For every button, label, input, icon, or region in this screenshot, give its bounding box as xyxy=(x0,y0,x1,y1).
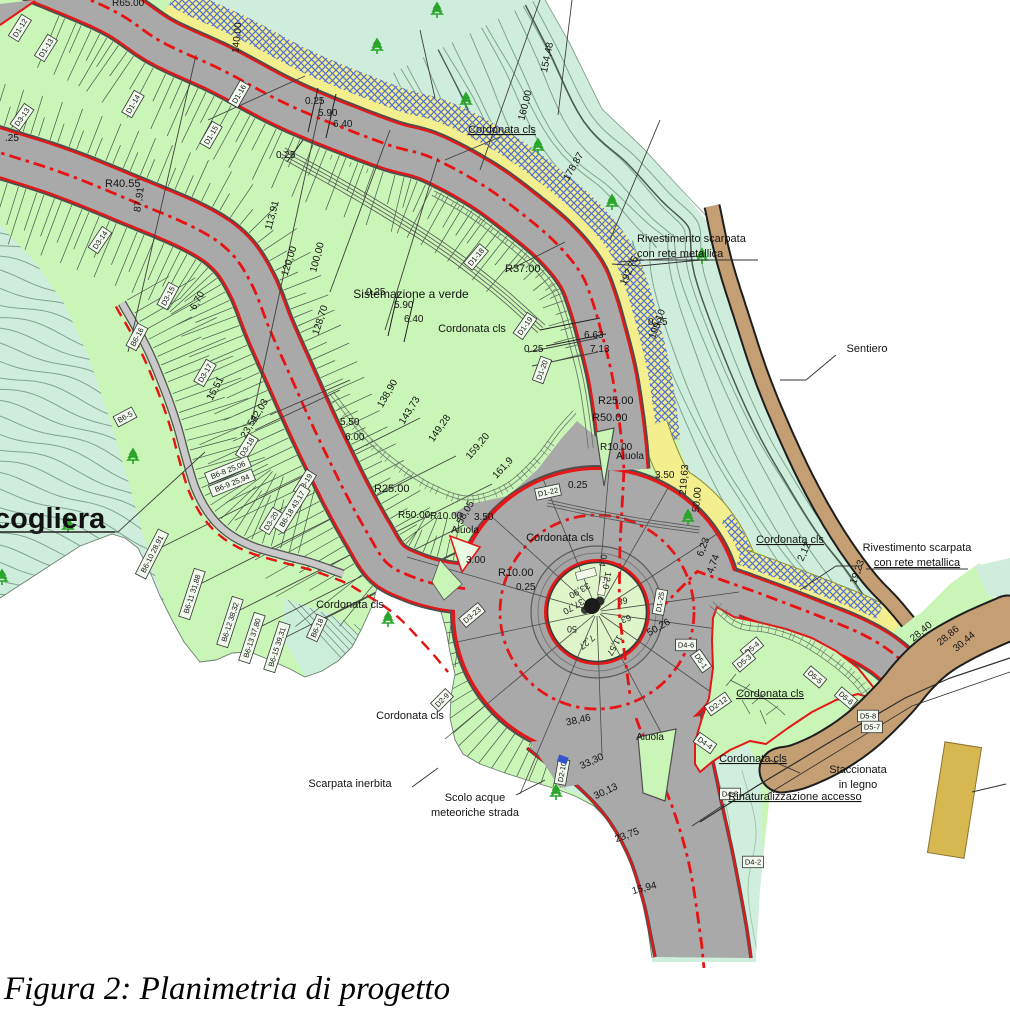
svg-text:50: 50 xyxy=(567,624,577,634)
svg-text:Scolo acque: Scolo acque xyxy=(445,792,506,804)
svg-text:0.25: 0.25 xyxy=(524,344,544,355)
svg-text:Cordonata cls: Cordonata cls xyxy=(376,710,444,722)
svg-text:Aiuola: Aiuola xyxy=(451,525,479,536)
svg-text:meteoriche strada: meteoriche strada xyxy=(431,807,520,819)
svg-text:Cordonata cls: Cordonata cls xyxy=(526,532,594,544)
svg-text:Cordonata cls: Cordonata cls xyxy=(316,599,384,611)
svg-text:Rivestimento scarpata: Rivestimento scarpata xyxy=(863,542,973,554)
svg-text:con rete metallica: con rete metallica xyxy=(637,248,724,260)
svg-text:3.50: 3.50 xyxy=(474,512,494,523)
svg-text:R10.00: R10.00 xyxy=(498,567,533,579)
svg-text:Staccionata: Staccionata xyxy=(829,764,887,776)
svg-text:.25: .25 xyxy=(5,133,19,144)
svg-text:R10.00: R10.00 xyxy=(600,442,633,453)
svg-text:D5-7: D5-7 xyxy=(864,723,880,732)
svg-text:Rinaturalizzazione accesso: Rinaturalizzazione accesso xyxy=(728,791,861,803)
svg-text:0.25: 0.25 xyxy=(276,150,296,161)
svg-text:R25.00: R25.00 xyxy=(374,483,409,495)
svg-text:6.40: 6.40 xyxy=(333,119,353,130)
svg-text:D5-8: D5-8 xyxy=(860,712,876,721)
svg-text:R50.00: R50.00 xyxy=(592,412,627,424)
svg-text:50,00: 50,00 xyxy=(691,486,704,512)
svg-text:Sentiero: Sentiero xyxy=(847,343,888,355)
svg-text:3.00: 3.00 xyxy=(466,555,486,566)
svg-text:0.25: 0.25 xyxy=(568,480,588,491)
svg-text:R37.00: R37.00 xyxy=(505,263,540,275)
svg-text:6.40: 6.40 xyxy=(404,314,424,325)
svg-text:cogliera: cogliera xyxy=(0,503,106,535)
svg-text:7.13: 7.13 xyxy=(590,344,610,355)
svg-text:Cordonata cls: Cordonata cls xyxy=(756,534,824,546)
svg-text:Scarpata inerbita: Scarpata inerbita xyxy=(308,778,392,790)
svg-text:con rete metallica: con rete metallica xyxy=(874,557,961,569)
svg-text:0.25: 0.25 xyxy=(516,582,536,593)
svg-text:Rivestimento scarpata: Rivestimento scarpata xyxy=(637,233,747,245)
svg-text:5.90: 5.90 xyxy=(318,108,338,119)
svg-text:in legno: in legno xyxy=(839,779,878,791)
svg-text:0,4: 0,4 xyxy=(597,553,609,567)
svg-text:Figura 2: Planimetria di proge: Figura 2: Planimetria di progetto xyxy=(3,971,450,1007)
svg-text:5.50: 5.50 xyxy=(340,417,360,428)
svg-text:Cordonata cls: Cordonata cls xyxy=(468,124,536,136)
svg-text:D4-2: D4-2 xyxy=(745,858,761,867)
svg-text:0.25: 0.25 xyxy=(366,287,386,298)
svg-text:6.00: 6.00 xyxy=(345,432,365,443)
svg-text:3.50: 3.50 xyxy=(655,470,675,481)
svg-text:Cordonata cls: Cordonata cls xyxy=(736,688,804,700)
svg-text:R25.00: R25.00 xyxy=(598,395,633,407)
svg-text:R50.00: R50.00 xyxy=(398,510,431,521)
svg-text:Cordonata cls: Cordonata cls xyxy=(438,323,506,335)
svg-text:D4-6: D4-6 xyxy=(678,641,694,650)
svg-text:Aiuola: Aiuola xyxy=(636,732,664,743)
svg-text:R65.00: R65.00 xyxy=(112,0,145,9)
